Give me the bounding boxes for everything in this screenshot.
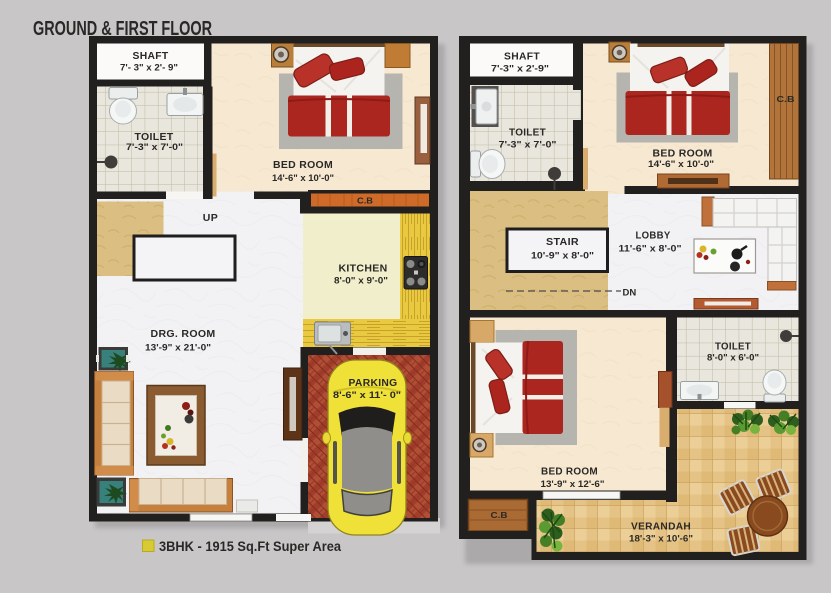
svg-text:7'-3" x 7'-0": 7'-3" x 7'-0" [126, 142, 183, 152]
svg-text:7'-3" x 2'-9": 7'-3" x 2'-9" [491, 64, 549, 74]
svg-text:TOILET: TOILET [715, 342, 751, 353]
svg-text:14'-6" x 10'-0": 14'-6" x 10'-0" [272, 173, 334, 183]
svg-text:7'- 3" x 2'- 9": 7'- 3" x 2'- 9" [120, 63, 178, 73]
svg-text:BED ROOM: BED ROOM [541, 467, 598, 478]
svg-text:BED ROOM: BED ROOM [653, 149, 713, 160]
svg-text:BED ROOM: BED ROOM [273, 160, 333, 171]
svg-text:DN: DN [623, 288, 637, 299]
svg-text:14'-6" x 10'-0": 14'-6" x 10'-0" [648, 159, 714, 169]
svg-text:13'-9" x 12'-6": 13'-9" x 12'-6" [541, 479, 605, 489]
svg-text:KITCHEN: KITCHEN [339, 264, 388, 275]
svg-text:VERANDAH: VERANDAH [631, 522, 691, 533]
svg-text:C.B: C.B [357, 196, 373, 206]
svg-text:8'-6" x 11'- 0": 8'-6" x 11'- 0" [333, 390, 401, 400]
svg-text:TOILET: TOILET [509, 128, 546, 139]
svg-text:8'-0" x 9'-0": 8'-0" x 9'-0" [334, 276, 388, 286]
svg-text:7'-3" x 7'-0": 7'-3" x 7'-0" [499, 140, 557, 150]
svg-text:18'-3" x 10'-6": 18'-3" x 10'-6" [629, 534, 693, 544]
svg-text:DRG. ROOM: DRG. ROOM [151, 329, 216, 340]
svg-text:3BHK - 1915 Sq.Ft Super Area: 3BHK - 1915 Sq.Ft Super Area [159, 539, 341, 554]
svg-text:PARKING: PARKING [349, 378, 398, 389]
svg-text:SHAFT: SHAFT [504, 52, 540, 63]
svg-text:10'-9" x 8'-0": 10'-9" x 8'-0" [531, 251, 594, 261]
svg-text:C.B: C.B [491, 510, 508, 520]
svg-text:8'-0" x 6'-0": 8'-0" x 6'-0" [707, 353, 759, 363]
svg-text:LOBBY: LOBBY [636, 231, 671, 242]
svg-text:SHAFT: SHAFT [133, 51, 169, 62]
svg-text:STAIR: STAIR [546, 237, 580, 248]
svg-text:11'-6" x 8'-0": 11'-6" x 8'-0" [619, 244, 682, 254]
svg-text:C.B: C.B [777, 94, 795, 104]
svg-text:UP: UP [203, 212, 219, 224]
svg-text:13'-9" x 21'-0": 13'-9" x 21'-0" [145, 343, 211, 353]
